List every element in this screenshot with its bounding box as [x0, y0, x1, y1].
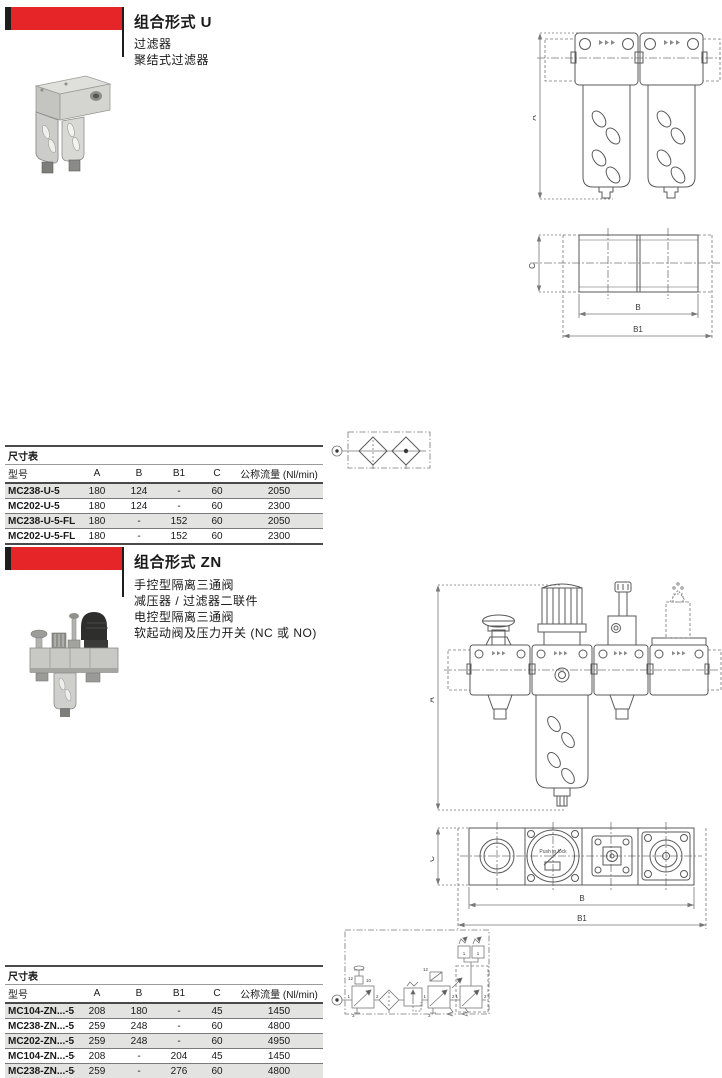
- table-row: MC202-U-5 180 124 - 60 2300: [5, 499, 323, 514]
- col-header-model: 型号: [5, 985, 75, 1004]
- drawing-zn-front-view: A: [430, 572, 722, 822]
- detent-label: 10: [366, 978, 372, 983]
- desc-line: 软起动阀及压力开关 (NC 或 NO): [134, 625, 317, 641]
- desc-line: 聚结式过滤器: [134, 52, 209, 68]
- manual-valve-symbol: [352, 966, 374, 1013]
- port-label: 1: [455, 994, 458, 999]
- table-row: MC238-ZN...-5 259 248 - 60 4800: [5, 1019, 323, 1034]
- drawing-u-bottom-view: C B B1: [528, 226, 722, 352]
- table-row: MC202-ZN...-5 259 248 - 60 4950: [5, 1034, 323, 1049]
- table-row: MC202-U-5-FL 180 - 152 60 2300: [5, 529, 323, 545]
- inlet-port-icon: [332, 995, 342, 1005]
- pilot-label: 12: [423, 967, 429, 972]
- col-header-model: 型号: [5, 465, 75, 484]
- brand-mark-icon: [492, 651, 686, 655]
- dim-label-b1: B1: [577, 914, 587, 923]
- desc-line: 减压器 / 过滤器二联件: [134, 593, 317, 609]
- col-header-a: A: [75, 465, 119, 484]
- section-desc-zn: 手控型隔离三通阀 减压器 / 过滤器二联件 电控型隔离三通阀 软起动阀及压力开关…: [134, 577, 317, 641]
- table-row: MC104-ZN...-5-FL 208 - 204 45 1450: [5, 1049, 323, 1064]
- col-header-flow: 公称流量 (Nl/min): [235, 465, 323, 484]
- gauge-text: Push to lock: [539, 849, 567, 855]
- banner-red-zn: [11, 547, 122, 570]
- dimension-table-u: 尺寸表 型号 A B B1 C 公称流量 (Nl/min) MC238-U-5 …: [5, 445, 323, 545]
- frl-assembly-illustration: [30, 612, 118, 717]
- port-label: 1: [347, 994, 350, 999]
- drawing-zn-bottom-view: Push to lock C B B1: [430, 820, 722, 938]
- col-header-c: C: [199, 985, 235, 1004]
- desc-line: 电控型隔离三通阀: [134, 609, 317, 625]
- table-row: MC238-U-5 180 124 - 60 2050: [5, 483, 323, 499]
- port-label: 1: [423, 994, 426, 999]
- banner-divider-zn: [122, 547, 124, 597]
- table-caption: 尺寸表: [5, 966, 323, 985]
- banner-divider-u: [122, 7, 124, 57]
- table-row: MC238-U-5-FL 180 - 152 60 2050: [5, 514, 323, 529]
- col-header-b: B: [119, 985, 159, 1004]
- catalog-page: 组合形式 U 过滤器 聚结式过滤器: [0, 0, 722, 1078]
- section-title-zn: 组合形式 ZN: [134, 551, 222, 572]
- dim-label-c: C: [528, 263, 537, 269]
- port-label: 3: [428, 1013, 431, 1018]
- filter-unit-illustration: [36, 76, 110, 173]
- dim-label-b: B: [579, 894, 584, 903]
- desc-line: 过滤器: [134, 36, 209, 52]
- regulator-symbol: [404, 982, 422, 1011]
- banner-red-u: [11, 7, 122, 30]
- section-desc-u: 过滤器 聚结式过滤器: [134, 36, 209, 68]
- product-photo-u: [26, 70, 116, 180]
- soft-start-symbol: [452, 958, 488, 1016]
- solenoid-valve-symbol: [428, 972, 453, 1016]
- col-header-a: A: [75, 985, 119, 1004]
- col-header-b1: B1: [159, 985, 199, 1004]
- table-row: MC104-ZN...-5 208 180 - 45 1450: [5, 1003, 323, 1019]
- section-title-u: 组合形式 U: [134, 11, 212, 32]
- port-label: 2: [484, 994, 487, 999]
- col-header-c: C: [199, 465, 235, 484]
- filter-symbol: [379, 990, 399, 1013]
- table-caption: 尺寸表: [5, 446, 323, 465]
- port-label: 2: [376, 994, 379, 999]
- inlet-port-icon: [332, 446, 342, 456]
- pneumatic-symbol-u: [327, 427, 435, 471]
- col-header-b: B: [119, 465, 159, 484]
- dim-label-a: A: [430, 697, 436, 703]
- col-header-b1: B1: [159, 465, 199, 484]
- drawing-u-front-view: A: [533, 25, 722, 210]
- dimension-table-zn: 尺寸表 型号 A B B1 C 公称流量 (Nl/min) MC104-ZN..…: [5, 965, 323, 1078]
- pneumatic-circuit-zn: 1 2 3 12 10 12 1 2: [328, 922, 500, 1018]
- dim-label-c: C: [430, 856, 436, 862]
- pilot-label: 12: [348, 976, 354, 981]
- desc-line: 手控型隔离三通阀: [134, 577, 317, 593]
- table-row: MC238-ZN...-5-FL 259 - 276 60 4800: [5, 1064, 323, 1078]
- col-header-flow: 公称流量 (Nl/min): [235, 985, 323, 1004]
- dim-label-b1: B1: [633, 325, 643, 334]
- dim-label-a: A: [533, 115, 538, 121]
- product-photo-zn: [24, 600, 124, 720]
- dim-label-b: B: [635, 303, 640, 312]
